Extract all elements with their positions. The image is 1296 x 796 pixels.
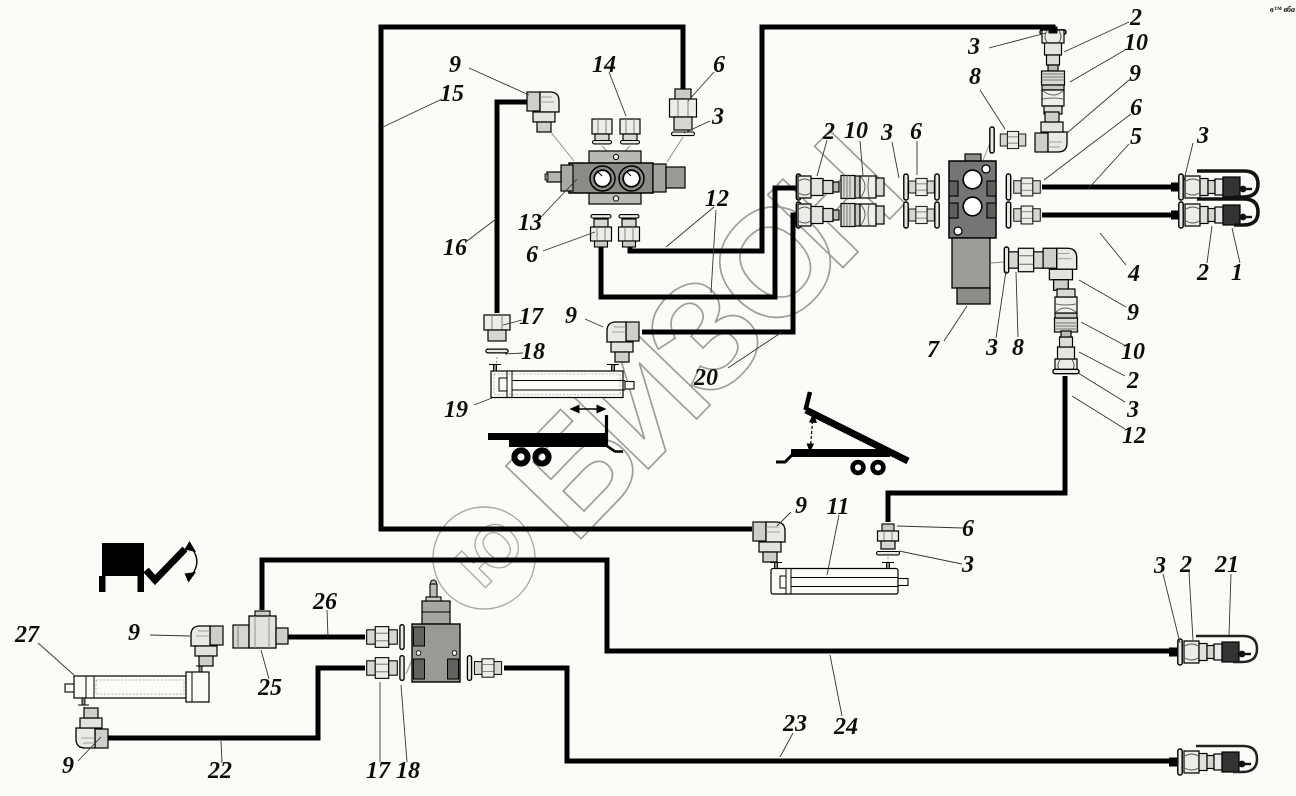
svg-text:9: 9 [449, 52, 461, 78]
svg-text:3: 3 [985, 335, 998, 361]
svg-text:12: 12 [1122, 423, 1146, 449]
svg-text:8: 8 [1012, 335, 1024, 361]
svg-text:3: 3 [1153, 553, 1166, 579]
svg-text:3: 3 [1196, 123, 1209, 149]
svg-text:21: 21 [1214, 552, 1239, 578]
svg-text:7: 7 [927, 337, 940, 363]
svg-text:11: 11 [827, 494, 850, 520]
svg-text:9: 9 [795, 493, 807, 519]
svg-text:9: 9 [1129, 61, 1141, 87]
svg-text:16: 16 [443, 235, 467, 261]
svg-text:19: 19 [444, 397, 468, 423]
svg-text:2: 2 [1196, 260, 1209, 286]
svg-text:6: 6 [962, 516, 974, 542]
svg-text:9: 9 [1127, 300, 1139, 326]
svg-text:20: 20 [693, 365, 718, 391]
svg-text:15: 15 [440, 81, 464, 107]
svg-text:24: 24 [833, 714, 858, 740]
svg-text:22: 22 [207, 758, 232, 784]
svg-text:6: 6 [910, 119, 922, 145]
svg-text:9: 9 [62, 753, 74, 779]
svg-text:5: 5 [1130, 124, 1142, 150]
svg-text:8: 8 [969, 64, 981, 90]
svg-text:10: 10 [1121, 339, 1145, 365]
svg-text:2: 2 [1129, 5, 1142, 31]
svg-text:14: 14 [592, 52, 616, 78]
svg-text:10: 10 [844, 118, 868, 144]
svg-text:3: 3 [967, 34, 980, 60]
svg-text:4: 4 [1127, 261, 1140, 287]
svg-text:6: 6 [1130, 95, 1142, 121]
svg-text:1: 1 [1231, 260, 1243, 286]
svg-text:9: 9 [128, 620, 140, 646]
svg-text:2: 2 [1126, 368, 1139, 394]
svg-text:6: 6 [713, 52, 725, 78]
svg-text:17: 17 [366, 758, 391, 784]
svg-text:9: 9 [565, 303, 577, 329]
svg-text:26: 26 [312, 589, 337, 615]
svg-text:2: 2 [822, 119, 835, 145]
svg-text:6: 6 [526, 242, 538, 268]
svg-text:10: 10 [1124, 30, 1148, 56]
svg-text:27: 27 [14, 622, 40, 648]
svg-text:17: 17 [519, 304, 544, 330]
svg-text:3: 3 [880, 120, 893, 146]
svg-text:18: 18 [396, 758, 420, 784]
svg-text:13: 13 [518, 210, 542, 236]
svg-text:23: 23 [782, 711, 807, 737]
svg-text:в™ вба: в™ вба [1270, 5, 1295, 14]
svg-text:2: 2 [1179, 552, 1192, 578]
svg-text:3: 3 [1126, 397, 1139, 423]
svg-text:25: 25 [257, 675, 282, 701]
svg-text:3: 3 [961, 552, 974, 578]
svg-text:3: 3 [711, 104, 724, 130]
svg-text:12: 12 [705, 186, 729, 212]
svg-text:18: 18 [521, 339, 545, 365]
